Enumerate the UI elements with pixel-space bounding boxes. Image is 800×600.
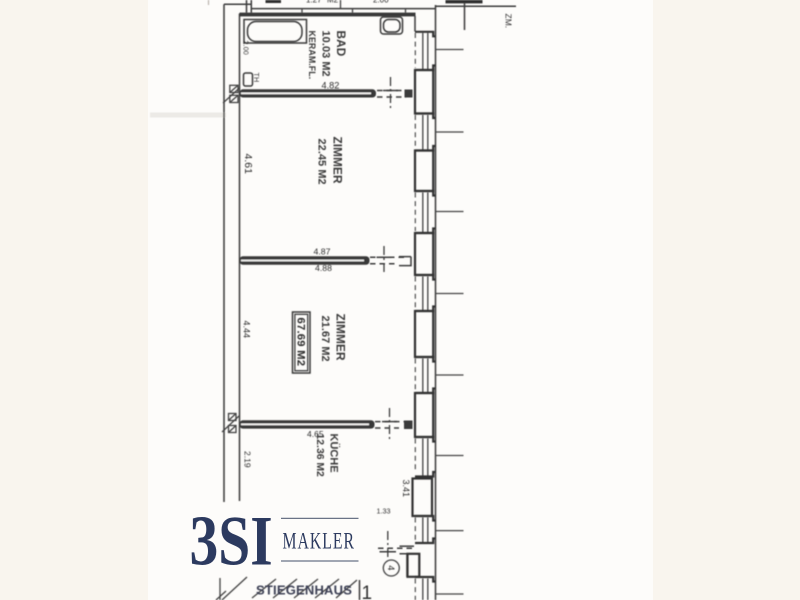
svg-text:1: 1 — [362, 583, 373, 600]
svg-text:22.45 M2: 22.45 M2 — [316, 139, 328, 185]
svg-text:3.41: 3.41 — [401, 480, 411, 498]
svg-text:ZIMMER: ZIMMER — [334, 314, 348, 362]
svg-text:1.33: 1.33 — [377, 507, 391, 516]
svg-text:4.87: 4.87 — [314, 247, 331, 257]
svg-text:1.27: 1.27 — [306, 0, 322, 5]
svg-text:2.19: 2.19 — [243, 451, 253, 468]
svg-text:4: 4 — [385, 565, 396, 570]
svg-text:2.00: 2.00 — [373, 0, 389, 5]
svg-text:ZM.: ZM. — [504, 14, 514, 29]
svg-text:TH: TH — [252, 73, 261, 83]
svg-text:2.00: 2.00 — [242, 41, 251, 55]
svg-text:BAD: BAD — [334, 31, 348, 57]
svg-text:STIEGENHAUS: STIEGENHAUS — [256, 583, 352, 598]
svg-text:4.44: 4.44 — [242, 321, 252, 339]
svg-text:KERAM.FL.: KERAM.FL. — [307, 31, 317, 80]
svg-text:67.69 M2: 67.69 M2 — [295, 318, 307, 367]
svg-text:3SI: 3SI — [190, 501, 273, 580]
svg-text:21.67 M2: 21.67 M2 — [319, 316, 331, 362]
svg-text:4.88: 4.88 — [315, 263, 332, 273]
svg-text:KÜCHE: KÜCHE — [328, 434, 341, 473]
svg-text:M2: M2 — [327, 0, 339, 5]
svg-text:10.03 M2: 10.03 M2 — [320, 31, 332, 77]
svg-text:4.82: 4.82 — [322, 81, 340, 91]
svg-text:ZIMMER: ZIMMER — [331, 137, 345, 185]
svg-text:MAKLER: MAKLER — [283, 529, 356, 555]
svg-text:4.61: 4.61 — [242, 154, 254, 175]
svg-text:12.36 M2: 12.36 M2 — [314, 434, 325, 478]
